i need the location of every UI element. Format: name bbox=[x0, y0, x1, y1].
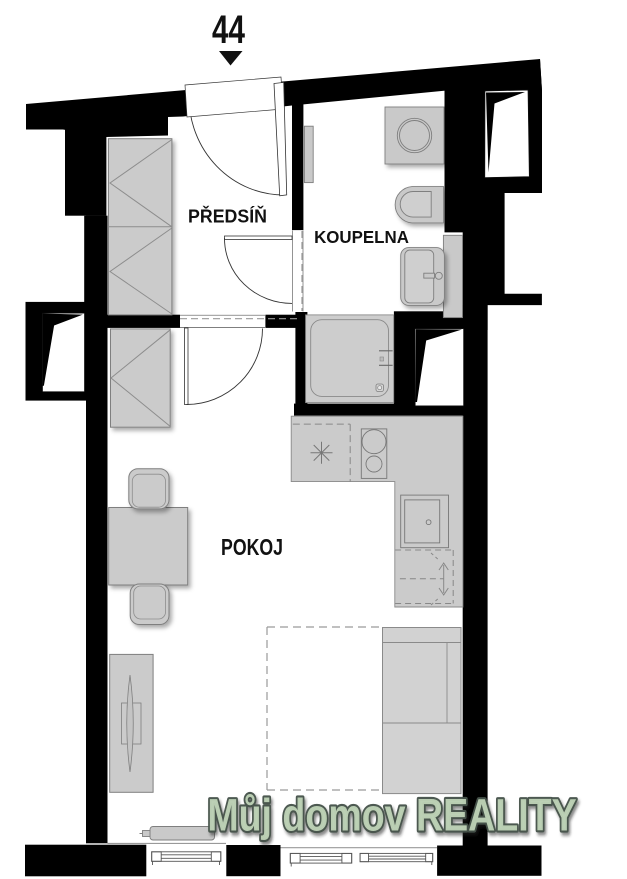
svg-text:POKOJ: POKOJ bbox=[221, 535, 283, 561]
svg-text:KOUPELNA: KOUPELNA bbox=[314, 226, 409, 247]
svg-text:PŘEDSÍŇ: PŘEDSÍŇ bbox=[188, 205, 267, 226]
svg-text:Můj domov REALITY: Můj domov REALITY bbox=[207, 789, 576, 840]
svg-text:44: 44 bbox=[212, 8, 245, 52]
